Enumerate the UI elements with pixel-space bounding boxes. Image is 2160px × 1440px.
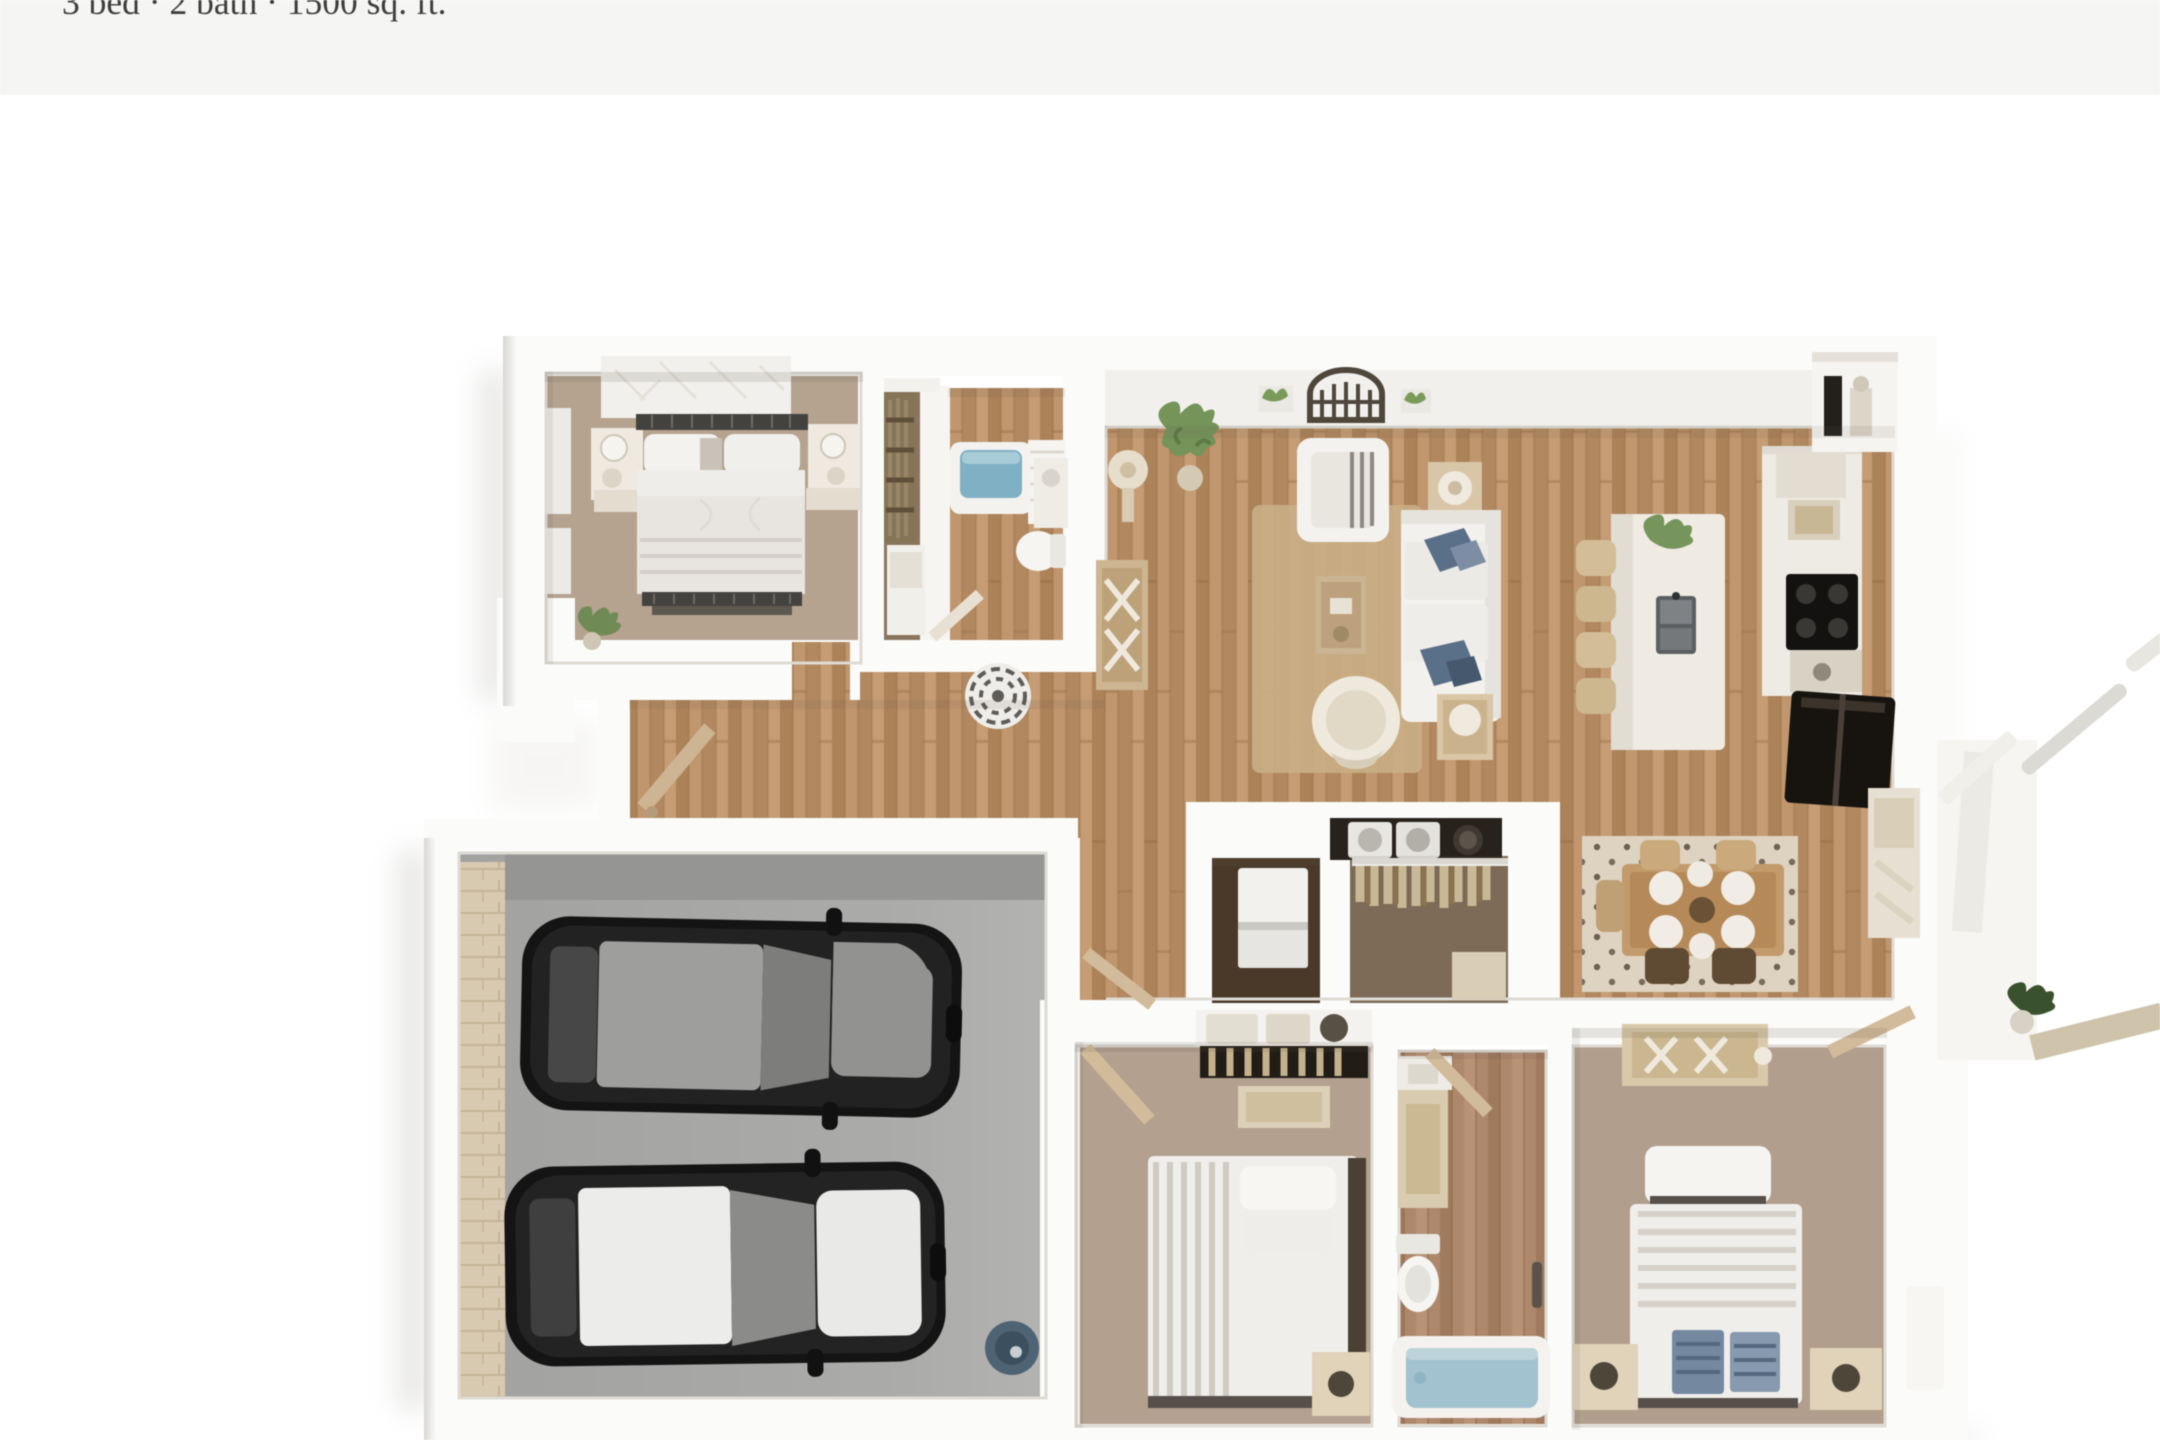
svg-text:3 bed · 2 bath · 1500 sq. ft.: 3 bed · 2 bath · 1500 sq. ft. <box>62 0 447 22</box>
